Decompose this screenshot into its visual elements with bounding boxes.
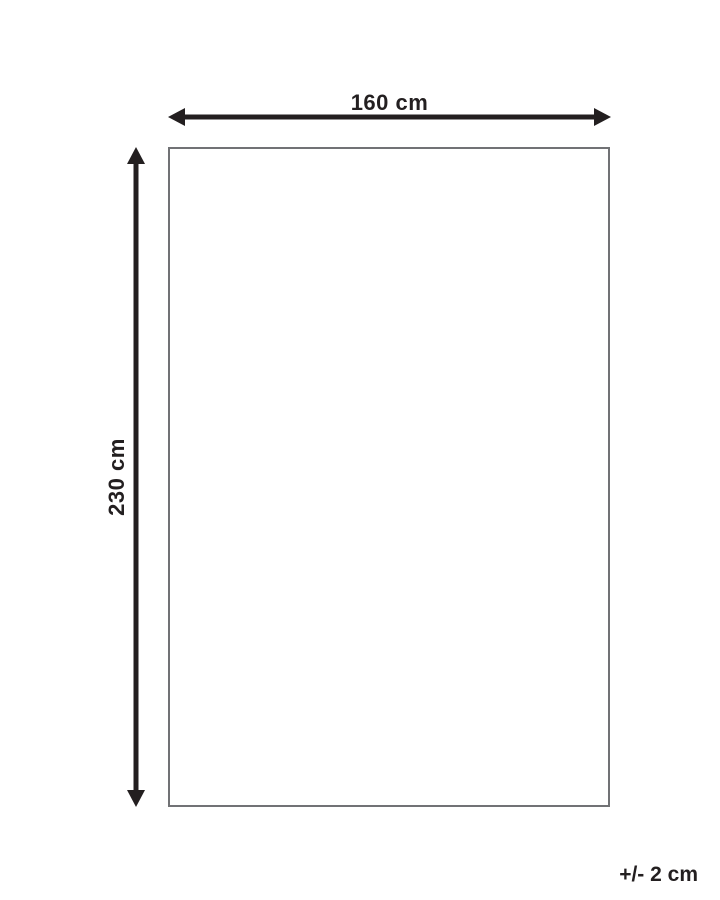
width-dimension-arrow	[168, 108, 611, 126]
width-arrow-line	[181, 115, 598, 120]
height-arrow-line	[134, 160, 139, 794]
product-dimension-diagram: 160 cm 230 cm +/- 2 cm	[0, 0, 720, 900]
height-dimension-label: 230 cm	[104, 438, 130, 516]
arrowhead-down-icon	[127, 790, 145, 807]
arrowhead-right-icon	[594, 108, 611, 126]
product-outline-rectangle	[168, 147, 610, 807]
tolerance-label: +/- 2 cm	[619, 863, 698, 887]
